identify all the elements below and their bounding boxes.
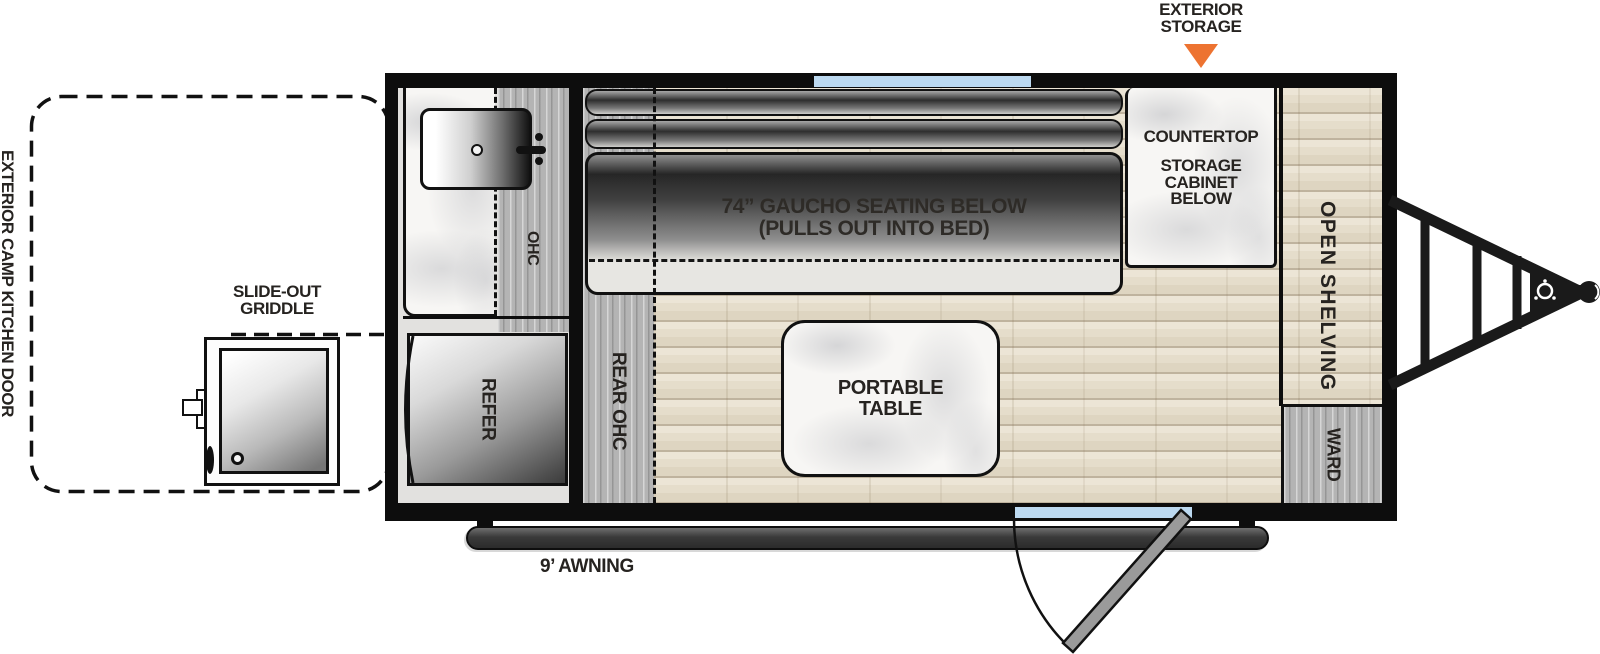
open-shelving-divider	[1279, 88, 1283, 406]
gaucho-seat-dashed-line	[589, 259, 1119, 262]
counter-edge-line	[403, 316, 569, 319]
gaucho-label: 74” GAUCHO SEATING BELOW (PULLS OUT INTO…	[625, 196, 1123, 240]
floorplan-diagram: EXTERIOR CAMP KITCHEN DOOR EXTERIOR STOR…	[0, 0, 1600, 654]
refrigerator: REFER	[407, 333, 568, 486]
countertop-label: COUNTERTOP	[1128, 128, 1274, 145]
sink-faucet	[516, 146, 546, 154]
ohc-label: OHC	[520, 218, 544, 278]
rear-ohc-label: REAR OHC	[599, 342, 637, 460]
refer-label: REFER	[477, 378, 499, 440]
open-shelving-label: OPEN SHELVING	[1308, 190, 1346, 402]
sink-drain	[471, 144, 483, 156]
window	[814, 76, 1031, 87]
gaucho-pullout-dashed-line	[653, 88, 656, 503]
griddle-knob	[231, 452, 244, 465]
ward-cabinet: WARD	[1281, 404, 1382, 503]
tongue-hitch	[1380, 180, 1600, 410]
refer-door-curve	[395, 330, 420, 490]
faucet-knob-top	[535, 133, 543, 141]
griddle-hinge	[206, 446, 214, 474]
griddle-clamp-arm	[182, 399, 203, 416]
ward-label: WARD	[1323, 428, 1344, 481]
entry-door-swing	[1000, 500, 1210, 654]
faucet-knob-bottom	[535, 157, 543, 165]
gaucho-bolster-bottom	[585, 119, 1123, 149]
countertop-storage-cabinet: COUNTERTOP STORAGE CABINET BELOW	[1125, 88, 1277, 268]
gaucho-bolster-top	[585, 89, 1123, 116]
portable-table: PORTABLE TABLE	[781, 320, 1000, 477]
